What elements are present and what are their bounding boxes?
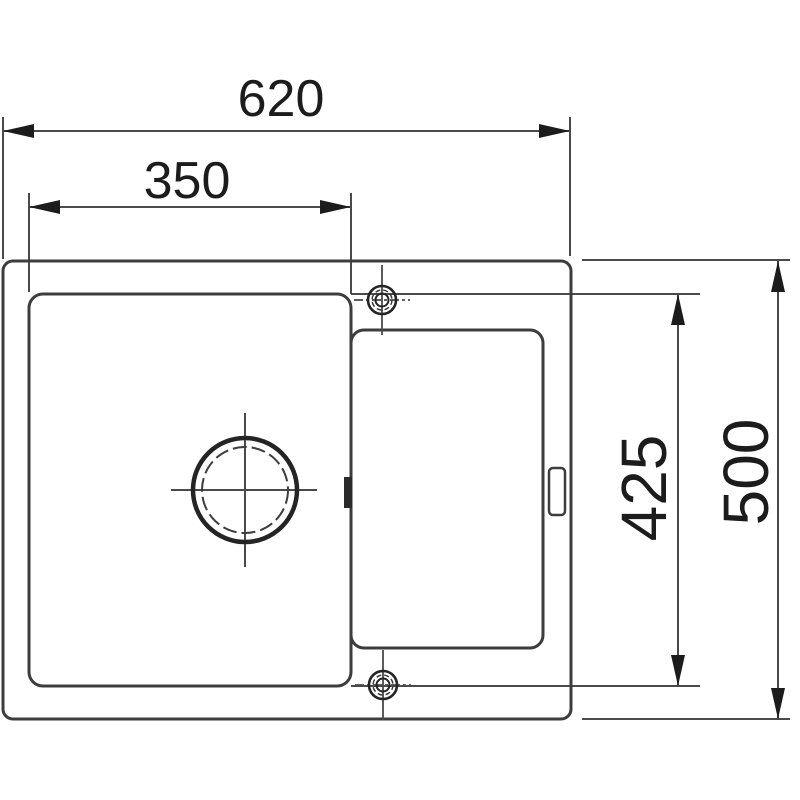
sink-technical-drawing: 620 350 425 500: [0, 0, 800, 800]
rim-slot-mark: [549, 468, 565, 515]
overflow-slot-mark: [344, 477, 352, 508]
dim-label-500: 500: [710, 419, 782, 526]
dim-label-620: 620: [238, 70, 325, 128]
arrow-500-top: [771, 261, 785, 292]
arrow-425-bottom: [671, 655, 685, 686]
dimension-arrows: [3, 124, 785, 719]
arrow-425-top: [671, 294, 685, 325]
dim-label-350: 350: [144, 152, 231, 210]
arrow-350-right: [320, 200, 351, 214]
drain-hole-symbol: [171, 413, 317, 567]
drainboard-inset-outline: [351, 330, 543, 648]
arrow-350-left: [29, 200, 60, 214]
arrow-620-left: [3, 124, 34, 138]
drawing-canvas: 620 350 425 500: [0, 0, 800, 800]
tap-hole-top: [354, 265, 410, 335]
dim-label-425: 425: [608, 435, 680, 542]
dimension-lines: [3, 131, 778, 719]
arrow-500-bottom: [771, 688, 785, 719]
arrow-620-right: [539, 124, 570, 138]
